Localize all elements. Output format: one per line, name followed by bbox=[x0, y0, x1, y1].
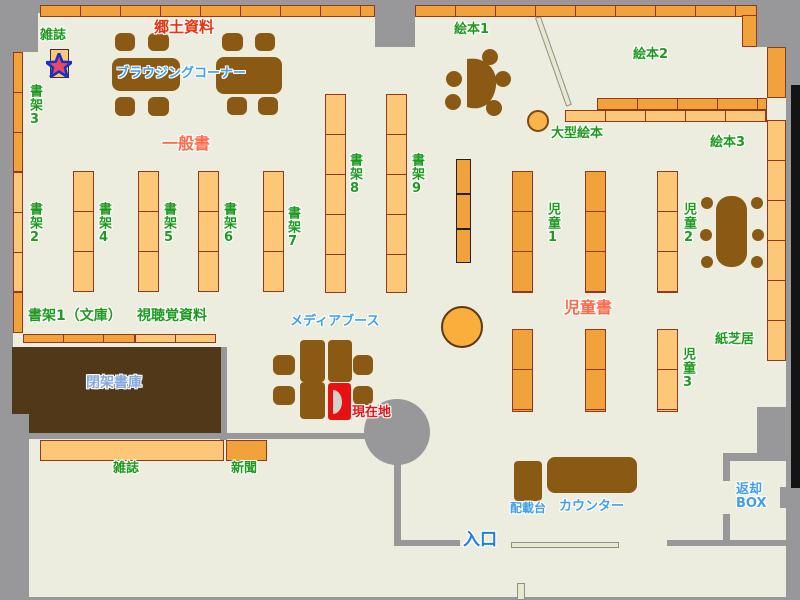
media-booth-carrel bbox=[300, 382, 325, 419]
shelf-wall-right-long bbox=[767, 120, 786, 361]
label-ehon2: 絵本2 bbox=[633, 48, 668, 62]
browsing-chair bbox=[222, 33, 243, 51]
haisai-stand bbox=[514, 461, 542, 501]
label-shoka2: 書架2 bbox=[28, 202, 41, 246]
jido2-stool bbox=[751, 197, 763, 209]
returnbox-wall-stub-upper bbox=[723, 453, 730, 481]
stackroom-notch bbox=[0, 414, 29, 434]
entrance-door-marker bbox=[517, 583, 525, 600]
label-genzaichi: 現在地 bbox=[352, 406, 391, 420]
shelf-wall-left-upper bbox=[13, 52, 23, 172]
label-shoka8: 書架8 bbox=[348, 153, 361, 197]
label-media-booth: メディアブース bbox=[290, 315, 379, 329]
jido2-stool bbox=[751, 256, 763, 268]
shelf-shoka7 bbox=[263, 171, 284, 292]
return-slot-dark bbox=[791, 85, 800, 488]
stackroom-right-wall bbox=[220, 347, 227, 440]
reading-circle-table bbox=[441, 306, 483, 348]
star-icon bbox=[46, 53, 72, 77]
label-shoka6: 書架6 bbox=[222, 202, 235, 246]
shelf-newspaper bbox=[226, 440, 267, 461]
label-zasshi-bottom: 雑誌 bbox=[113, 462, 139, 476]
label-shoka4: 書架4 bbox=[97, 202, 110, 246]
label-kyodo-shiryo: 郷土資料 bbox=[154, 19, 214, 36]
label-ippansho: 一般書 bbox=[162, 135, 210, 153]
browsing-chair bbox=[255, 33, 275, 51]
label-kamishibai: 紙芝居 bbox=[715, 333, 754, 347]
label-iriguchi: 入口 bbox=[463, 531, 497, 550]
browsing-chair bbox=[148, 97, 169, 116]
entrance-wall-vertical bbox=[394, 460, 401, 546]
wall-bottom-left-block bbox=[0, 414, 29, 600]
label-ehon3: 絵本3 bbox=[710, 136, 745, 150]
shelf-ehon-row-top bbox=[597, 98, 767, 110]
label-heika-shoko: 閉架書庫 bbox=[86, 376, 142, 391]
counter-desk bbox=[547, 457, 637, 493]
label-zasshi-top: 雑誌 bbox=[40, 29, 66, 43]
jido2-stool bbox=[700, 229, 712, 241]
ehon1-stool bbox=[495, 71, 511, 87]
browsing-chair bbox=[258, 97, 278, 115]
media-booth-seat bbox=[273, 355, 295, 375]
returnbox-wall-top bbox=[723, 453, 790, 461]
label-shoka7: 書架7 bbox=[286, 206, 299, 250]
entrance-gate-bar bbox=[511, 542, 619, 548]
returnbox-wall-block bbox=[757, 407, 790, 454]
jido2-table bbox=[716, 196, 747, 267]
shelf-jido1-a bbox=[512, 171, 533, 293]
ehon1-stool bbox=[482, 49, 498, 65]
shelf-top-right-row bbox=[415, 5, 757, 17]
shelf-wall-left-lower bbox=[13, 292, 23, 333]
ehon1-stool bbox=[446, 71, 462, 87]
shelf-magazine-bottom bbox=[40, 440, 224, 461]
label-shichokaku: 視聴覚資料 bbox=[137, 309, 207, 324]
wall-pillar bbox=[375, 0, 415, 47]
shelf-shoka9 bbox=[386, 94, 407, 293]
label-ehon1: 絵本1 bbox=[454, 23, 489, 37]
shelf-jido1-b bbox=[585, 171, 606, 293]
shelf-jido-lower-a bbox=[512, 329, 533, 412]
browsing-chair bbox=[115, 97, 135, 116]
shelf-ehon-row-bottom bbox=[565, 110, 767, 122]
label-ogata-ehon: 大型絵本 bbox=[551, 127, 603, 141]
shelf-wall-right-top bbox=[767, 47, 786, 98]
returnbox-wall-stub-lower bbox=[723, 514, 730, 541]
media-booth-seat bbox=[273, 386, 295, 405]
jido2-stool bbox=[752, 229, 764, 241]
label-henkyaku-box: 返却BOX bbox=[736, 483, 778, 512]
wall-corner-top-left bbox=[0, 0, 38, 52]
shelf-jido3 bbox=[657, 329, 678, 412]
shelf-jido2 bbox=[657, 171, 678, 293]
media-booth-seat bbox=[353, 386, 373, 405]
returnbox-wall-bump bbox=[780, 487, 790, 508]
label-shinbun: 新聞 bbox=[231, 462, 257, 476]
shelf-av-row-light bbox=[135, 334, 216, 343]
label-jido3: 児童3 bbox=[681, 347, 694, 391]
label-browsing-corner: ブラウジングコーナー bbox=[116, 67, 246, 81]
label-jido1: 児童1 bbox=[546, 202, 559, 246]
label-shoka5: 書架5 bbox=[162, 202, 175, 246]
ehon1-stool bbox=[486, 100, 502, 116]
library-floor-map: 雑誌 書架3 書架2 郷土資料 ブラウジングコーナー 一般書 書架4 書架5 書… bbox=[0, 0, 800, 600]
label-shoka9: 書架9 bbox=[410, 153, 423, 197]
partition-diagonal bbox=[535, 16, 572, 107]
label-jidosho: 児童書 bbox=[564, 299, 612, 317]
browsing-chair bbox=[115, 33, 135, 51]
jido2-stool bbox=[701, 197, 713, 209]
ogata-ehon-stand bbox=[527, 110, 549, 132]
shelf-top-right-stub bbox=[742, 15, 757, 47]
shelf-wall-left-middle bbox=[13, 172, 23, 292]
label-shoka3: 書架3 bbox=[28, 84, 41, 128]
jido2-stool bbox=[701, 256, 713, 268]
ehon1-stool bbox=[445, 94, 461, 110]
shelf-jido-lower-b bbox=[585, 329, 606, 412]
browsing-chair bbox=[227, 97, 247, 115]
label-shoka1-bunko: 書架1（文庫） bbox=[28, 309, 122, 324]
shelf-shoka6 bbox=[198, 171, 219, 292]
shelf-dark-mini bbox=[456, 159, 471, 263]
media-booth-carrel bbox=[300, 340, 325, 382]
label-jido2: 児童2 bbox=[682, 202, 695, 246]
label-counter: カウンター bbox=[559, 500, 624, 514]
label-haisai-dai: 配載台 bbox=[510, 502, 546, 515]
shelf-av-row-dark bbox=[23, 334, 135, 343]
media-booth-seat bbox=[353, 355, 373, 375]
shelf-shoka5 bbox=[138, 171, 159, 292]
shelf-shoka8 bbox=[325, 94, 346, 293]
entrance-wall-bottom bbox=[394, 540, 460, 546]
entrance-wall-horizontal bbox=[12, 433, 366, 439]
shelf-shoka4 bbox=[73, 171, 94, 292]
media-booth-carrel bbox=[328, 340, 352, 382]
shelf-top-left-row bbox=[40, 5, 375, 17]
